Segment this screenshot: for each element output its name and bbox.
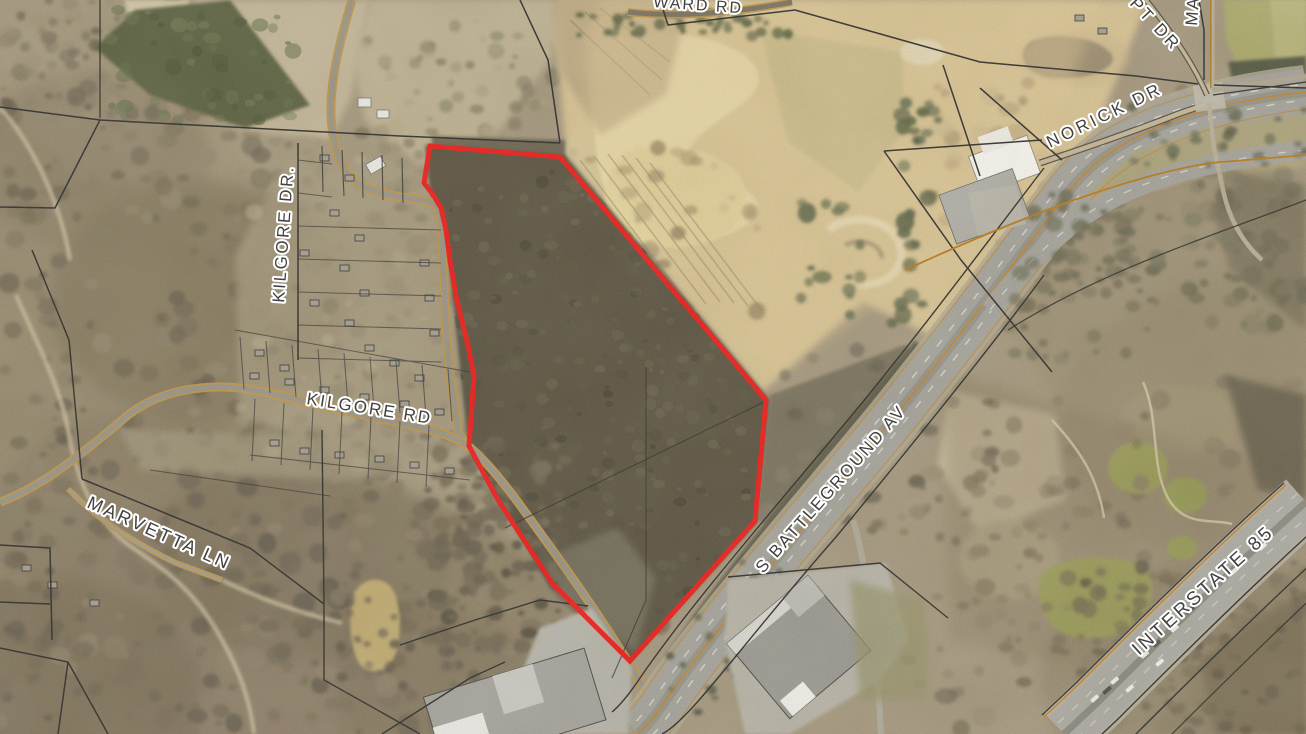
svg-text:MA: MA <box>1182 0 1203 26</box>
